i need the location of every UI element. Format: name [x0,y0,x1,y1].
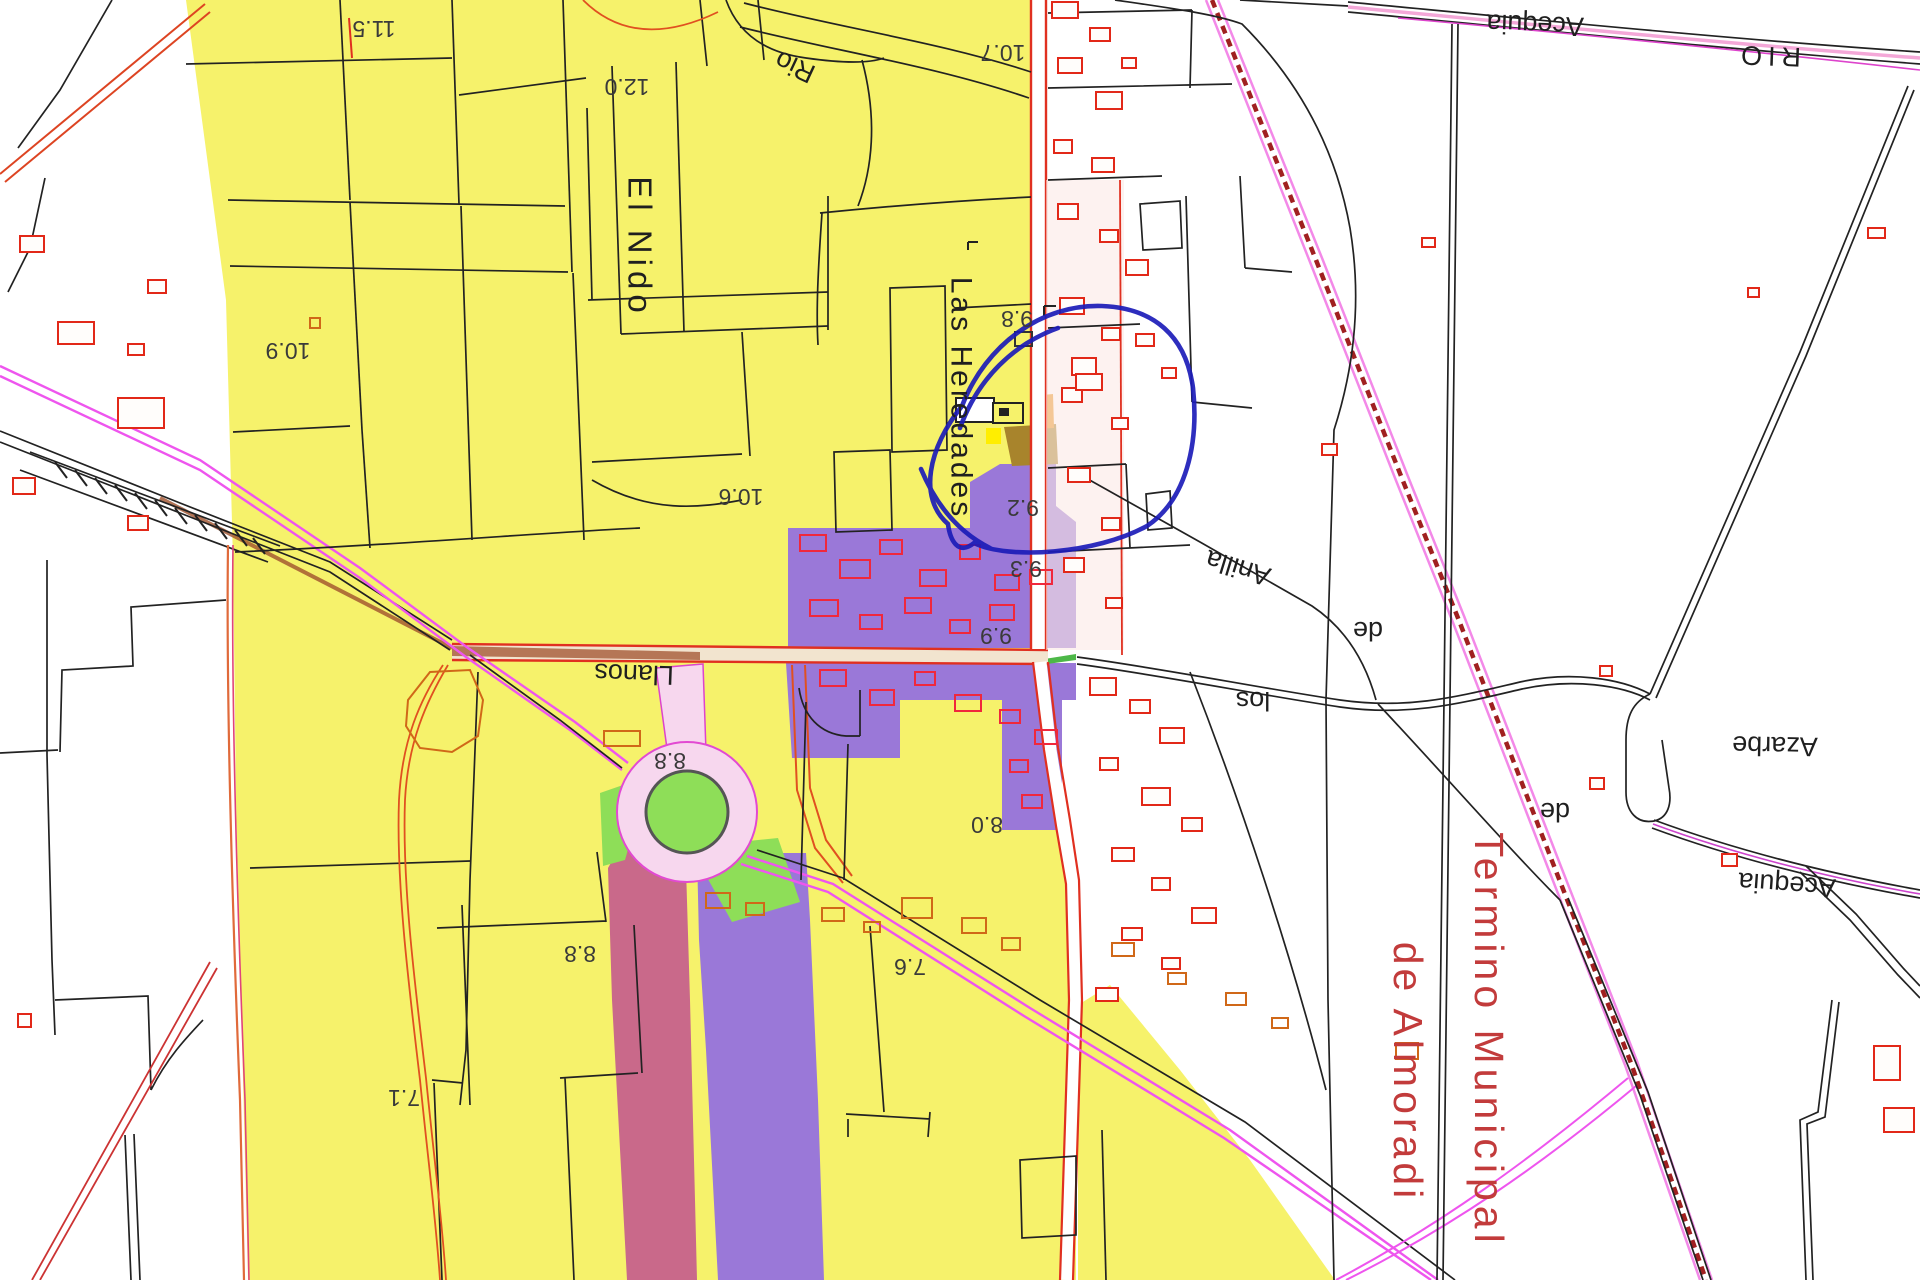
label-rio-big: RIO [1734,40,1801,72]
label-termino-municipal: Termino Municipal [1466,832,1512,1247]
label-las-heredades: Las Heredades [945,277,978,519]
label-de-almoradi: de Almoradi [1385,942,1431,1203]
label-elevation-9-9: 9.9 [980,623,1012,649]
label-elevation-12-0: 12.0 [605,74,650,100]
yellow-patch [986,428,1001,444]
label-elevation-7-1: 7.1 [388,1085,420,1111]
label-elevation-8-8-a: 8.8 [654,748,686,774]
label-elevation-9-8: 9.8 [1001,306,1033,332]
label-de-b: de [1540,797,1570,827]
label-azarbe: Azarbe [1732,730,1818,761]
label-elevation-11-5: 11.5 [352,16,395,42]
label-elevation-7-6: 7.6 [894,954,926,980]
label-llanos: Llanos [594,658,675,691]
label-los: los [1236,686,1271,716]
label-elevation-8-8-b: 8.8 [564,941,596,967]
label-elevation-10-6: 10.6 [719,484,764,510]
label-de-a: de [1353,616,1383,646]
label-elevation-10-9: 10.9 [266,338,311,364]
label-elevation-10-7: 10.7 [981,40,1026,66]
label-el-nido: El Nido [622,176,659,317]
map-viewport: 11.5 12.0 10.7 10.9 10.6 9.8 9.2 9.3 9.9… [0,0,1920,1280]
planning-map: 11.5 12.0 10.7 10.9 10.6 9.8 9.2 9.3 9.9… [0,0,1920,1280]
label-elevation-9-2: 9.2 [1007,495,1039,521]
label-elevation-8-0: 8.0 [971,812,1003,838]
label-elevation-9-3: 9.3 [1010,556,1042,582]
label-acequia-top: Acequia [1485,8,1585,41]
